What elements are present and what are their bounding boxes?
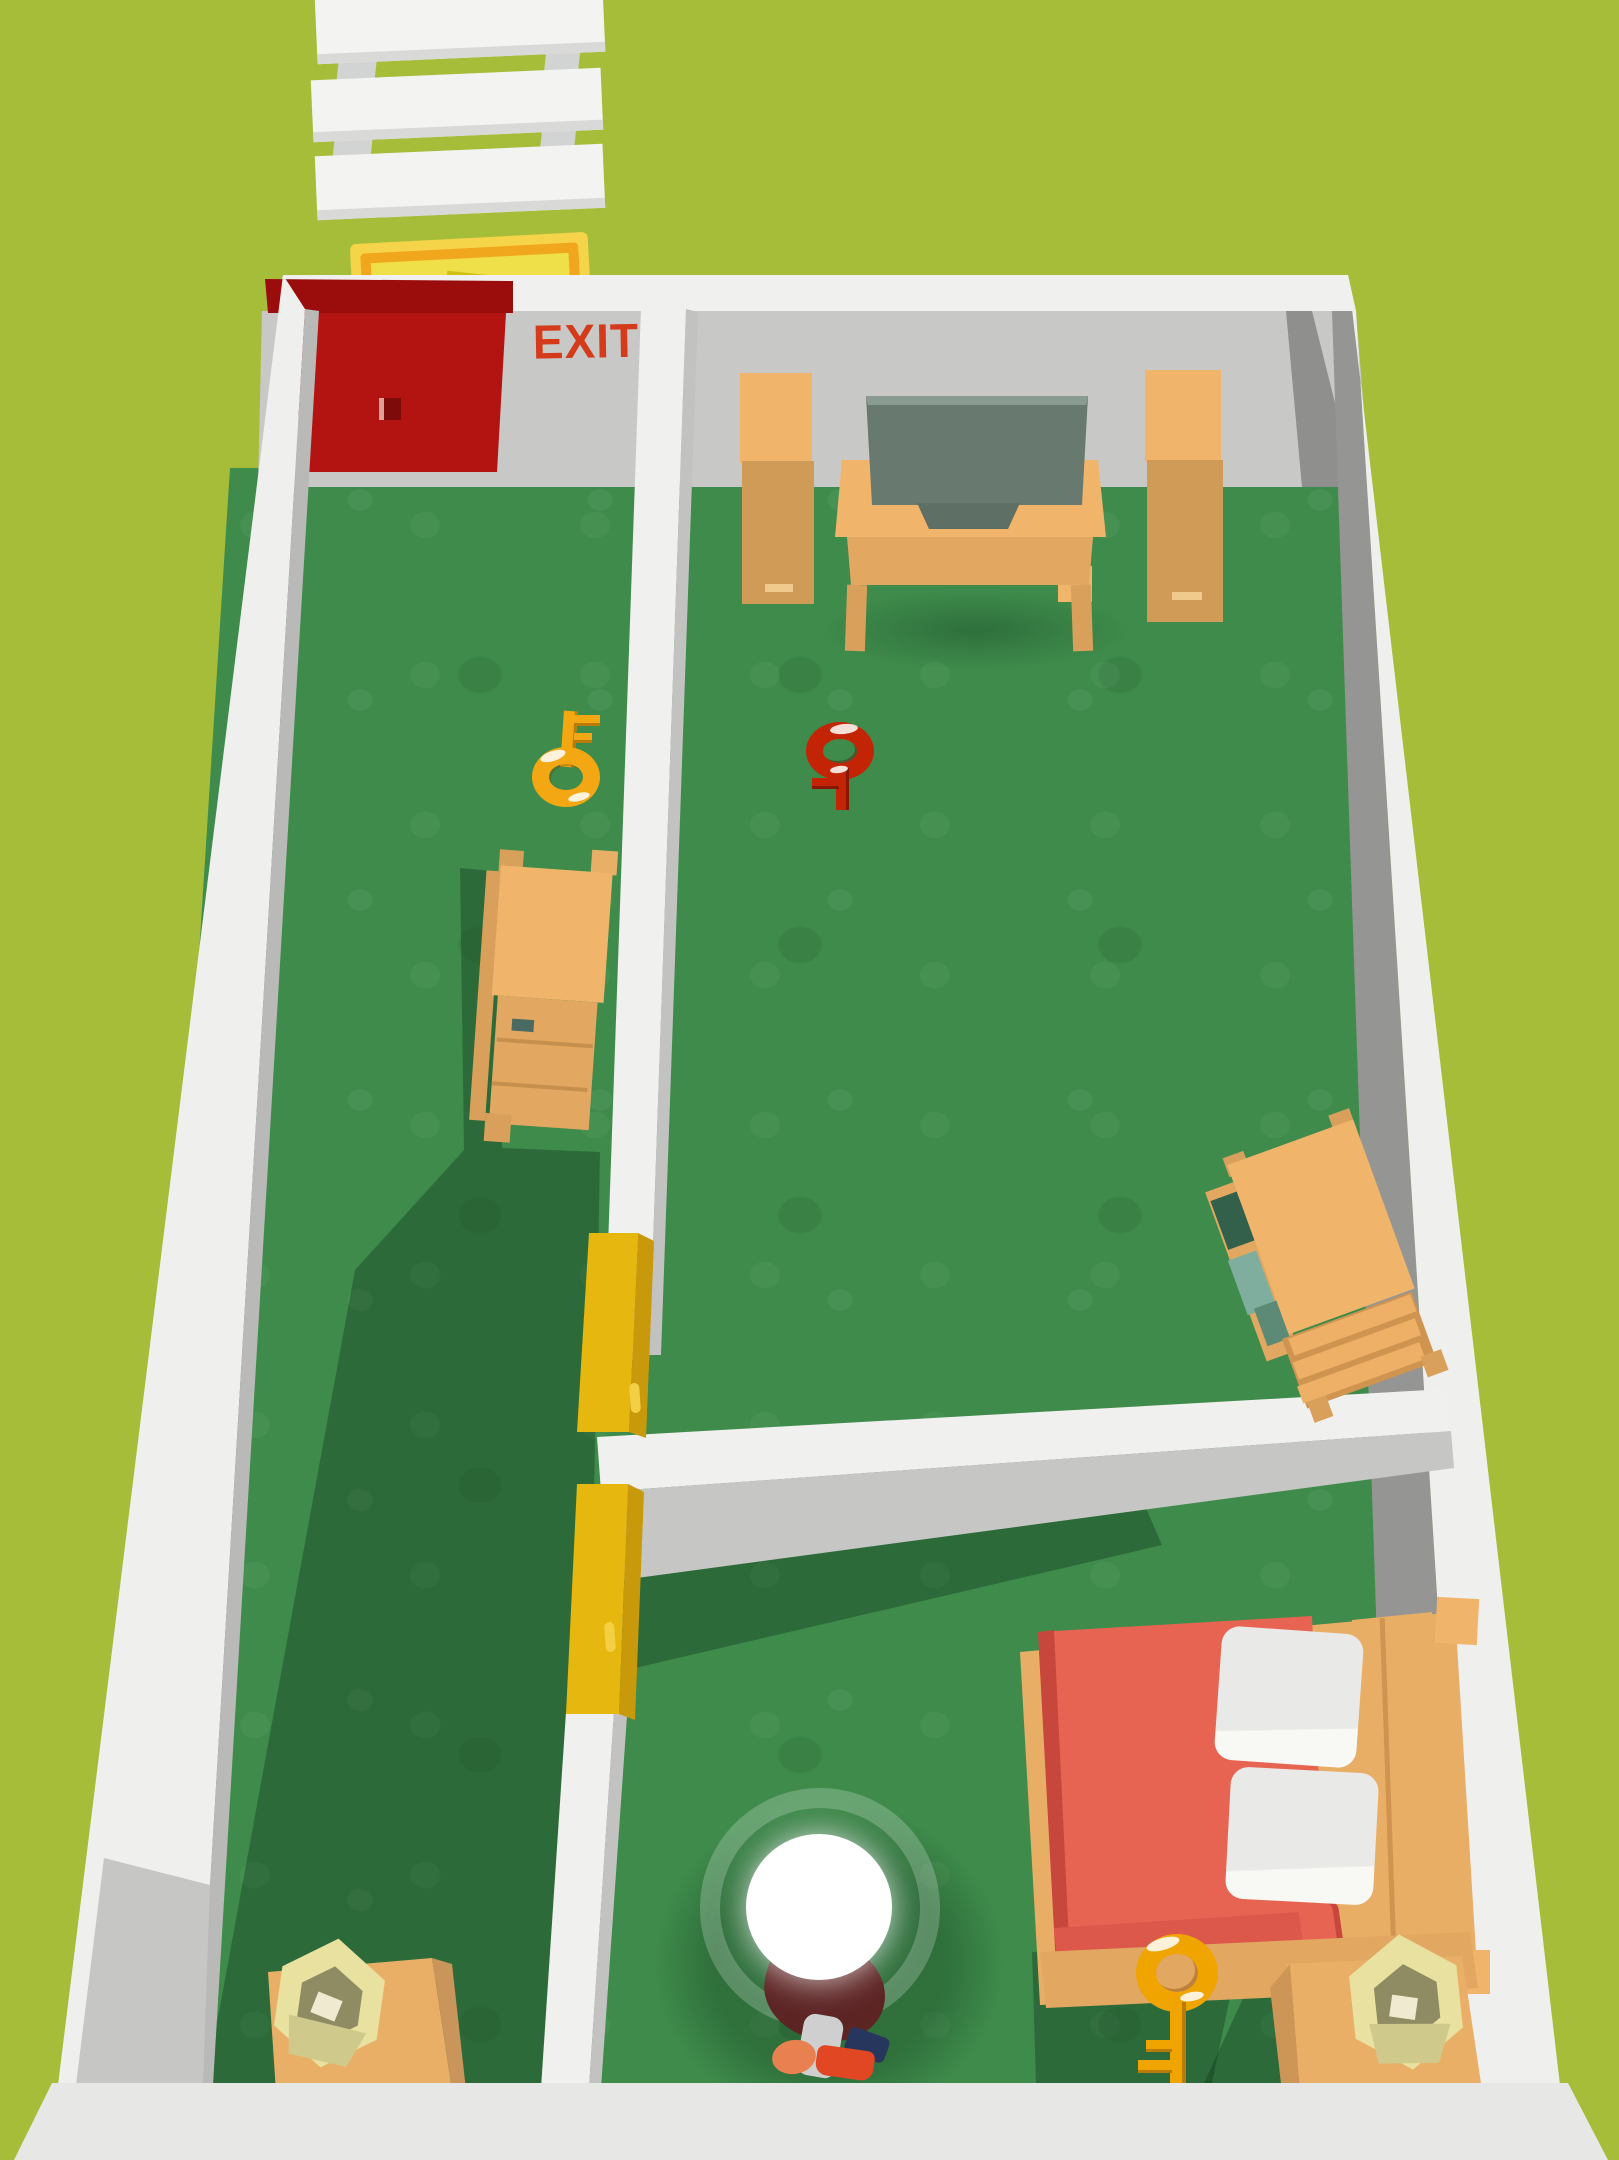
dresser-handle bbox=[511, 1019, 534, 1033]
key-tooth bbox=[574, 733, 592, 743]
speaker-right-slot bbox=[1172, 592, 1202, 600]
bed-pillow bbox=[1225, 1766, 1380, 1906]
key-gold-bedroom[interactable] bbox=[1128, 1928, 1258, 2088]
lamp-right bbox=[1339, 1928, 1473, 2076]
dresser-top bbox=[492, 865, 613, 1002]
key-stem bbox=[836, 768, 849, 810]
key-tooth bbox=[1146, 2040, 1172, 2052]
yellow-door-upper-keyhole bbox=[629, 1383, 641, 1414]
speaker-left-slot bbox=[765, 584, 793, 592]
speaker-right bbox=[1145, 370, 1221, 462]
bed-pillow bbox=[1213, 1625, 1364, 1769]
speaker-left-body bbox=[742, 461, 814, 604]
player-character[interactable] bbox=[740, 1820, 920, 2090]
key-tooth bbox=[574, 715, 600, 726]
game-viewport: EXIT bbox=[0, 0, 1619, 2160]
character-head bbox=[746, 1834, 892, 1980]
lamp-bulb bbox=[1389, 1995, 1418, 2020]
key-tooth bbox=[812, 778, 839, 789]
tv-stand-leg bbox=[845, 585, 867, 652]
dresser-drawers bbox=[489, 996, 598, 1131]
lamp-left bbox=[264, 1931, 396, 2076]
key-red-living-room[interactable] bbox=[800, 716, 910, 816]
dresser-post bbox=[484, 1113, 512, 1143]
tv-stand-leg bbox=[1071, 585, 1093, 652]
speaker-left bbox=[740, 373, 812, 463]
bed-post bbox=[1435, 1597, 1479, 1645]
exit-door-handle bbox=[384, 398, 401, 420]
exit-plank bbox=[311, 68, 603, 143]
key-tooth bbox=[1138, 2060, 1172, 2073]
dresser bbox=[468, 840, 629, 1149]
yellow-door-lower-keyhole bbox=[604, 1622, 616, 1653]
key-gold-left-room[interactable] bbox=[528, 705, 648, 815]
exit-plank bbox=[315, 144, 606, 221]
key-stem bbox=[1170, 2002, 1186, 2084]
